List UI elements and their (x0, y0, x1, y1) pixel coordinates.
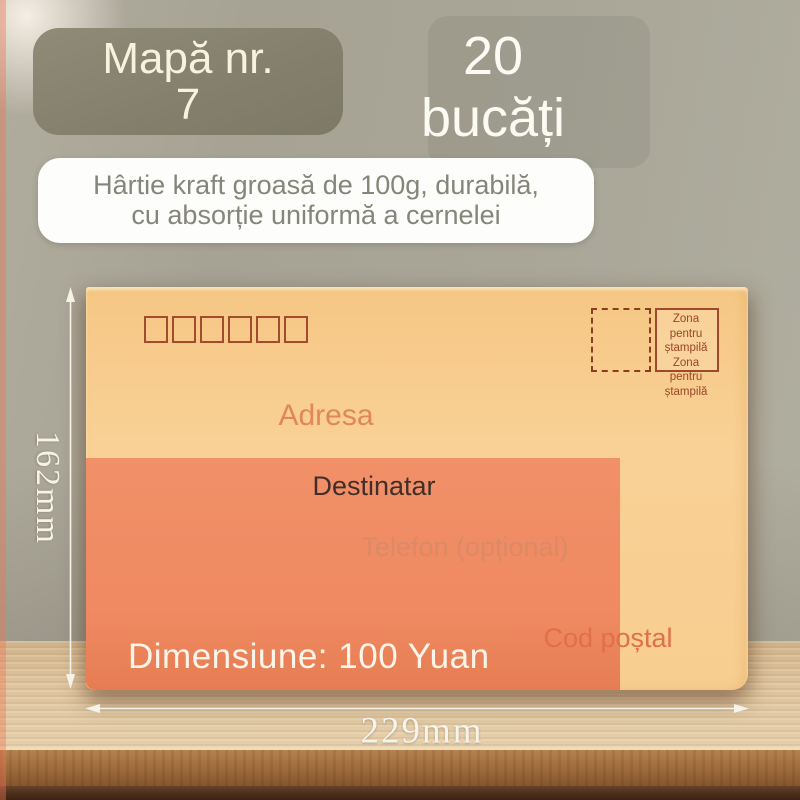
width-dimension-label: 229mm (360, 710, 483, 753)
postal-code-box (228, 316, 252, 343)
postal-code-box (200, 316, 224, 343)
product-banner: Mapă nr. 7 20 bucăți Hârtie kraft groasă… (0, 0, 800, 800)
folder-number-badge: Mapă nr. 7 (33, 28, 343, 135)
recipient-label: Destinatar (274, 471, 474, 502)
stamp-dashed-box (591, 308, 651, 372)
recipient-overlay: Destinatar Telefon (opțional) Dimensiune… (86, 458, 620, 690)
table-front-shadow (0, 786, 800, 800)
kraft-envelope: Zona pentru ștampilă Zona pentru ștampil… (86, 287, 748, 690)
phone-label: Telefon (opțional) (340, 532, 590, 563)
stamp-solid-box: Zona pentru ștampilă Zona pentru ștampil… (655, 308, 719, 372)
stamp-zone-line: pentru (654, 327, 718, 342)
price-label: Dimensiune: 100 Yuan (128, 637, 490, 677)
postal-code-box (172, 316, 196, 343)
table-front-edge (0, 750, 800, 786)
stamp-zone-line: ștampilă (654, 341, 718, 356)
stamp-zone-line: Zona (654, 312, 718, 327)
postal-code-boxes (144, 316, 308, 343)
badge-line2: 7 (176, 82, 200, 128)
badge-line1: Mapă nr. (102, 36, 273, 82)
description-line1: Hârtie kraft groasă de 100g, durabilă, (38, 170, 594, 200)
quantity-unit: bucăți (395, 87, 591, 149)
description-line2: cu absorție uniformă a cernelei (38, 200, 594, 230)
stamp-zone-line: pentru (654, 370, 718, 385)
description-card: Hârtie kraft groasă de 100g, durabilă, c… (38, 158, 594, 243)
stamp-zone-line: Zona (654, 356, 718, 371)
quantity-text: 20 bucăți (395, 25, 591, 149)
left-edge-color-bleed (0, 0, 6, 800)
postal-code-box (284, 316, 308, 343)
height-dimension-label: 162mm (28, 431, 66, 545)
stamp-zone-line: ștampilă (654, 385, 718, 400)
stamp-zone-text: Zona pentru ștampilă Zona pentru ștampil… (654, 312, 718, 400)
address-label: Adresa (236, 399, 416, 433)
postal-code-box (144, 316, 168, 343)
postal-code-label: Cod poștal (518, 623, 698, 654)
postal-code-box (256, 316, 280, 343)
quantity-count: 20 (395, 25, 591, 87)
